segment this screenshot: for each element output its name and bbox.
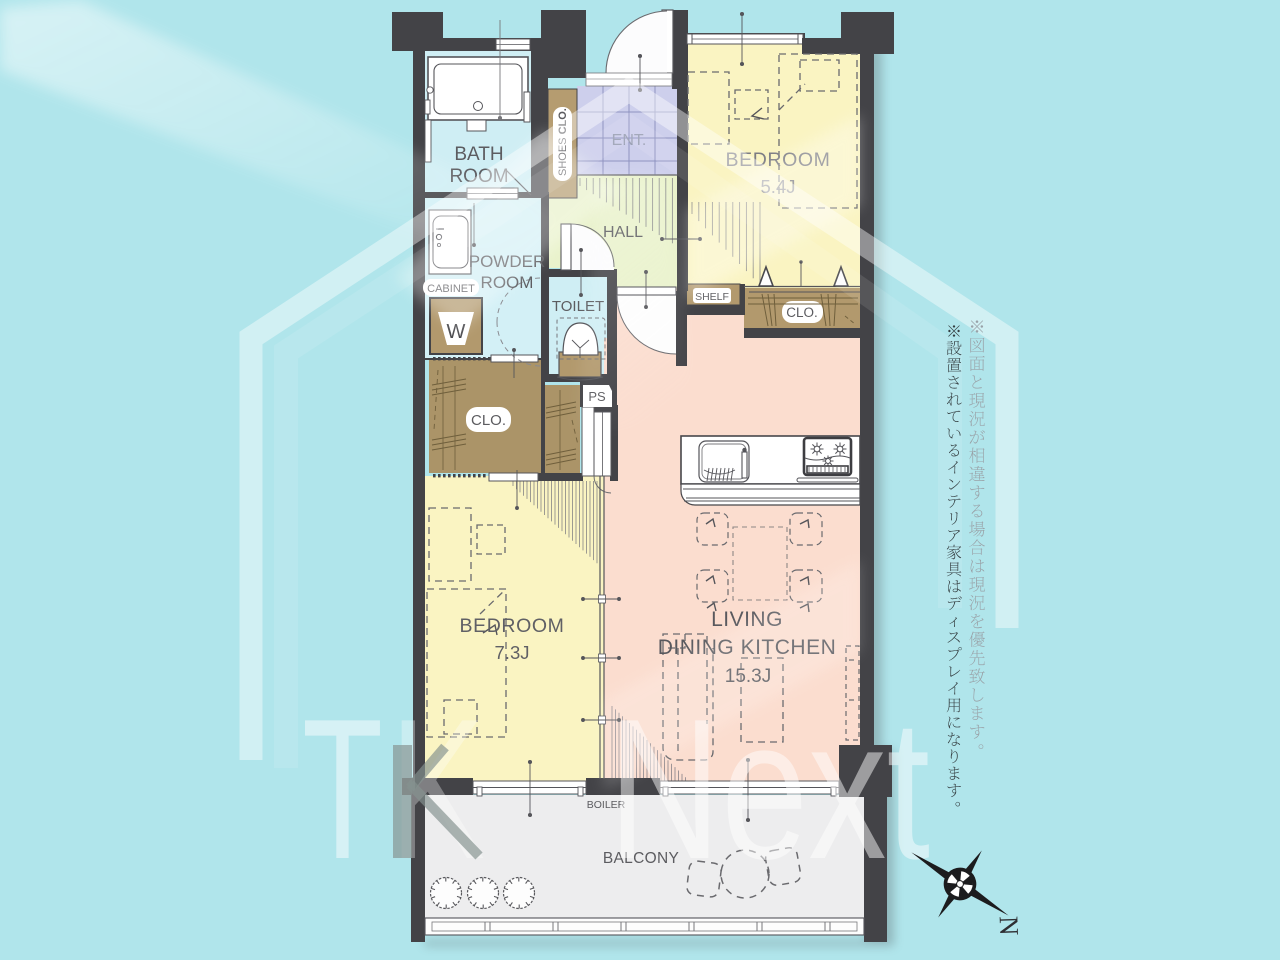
svg-text:CLO.: CLO. bbox=[786, 305, 818, 320]
svg-text:7.3J: 7.3J bbox=[495, 642, 530, 663]
svg-text:BEDROOM: BEDROOM bbox=[460, 615, 565, 637]
svg-text:T: T bbox=[302, 678, 383, 901]
svg-text:CLO.: CLO. bbox=[471, 412, 506, 429]
svg-text:N: N bbox=[994, 916, 1025, 937]
svg-text:SHELF: SHELF bbox=[695, 291, 729, 303]
svg-text:BATH: BATH bbox=[454, 144, 503, 165]
svg-text:Next: Next bbox=[608, 678, 930, 901]
